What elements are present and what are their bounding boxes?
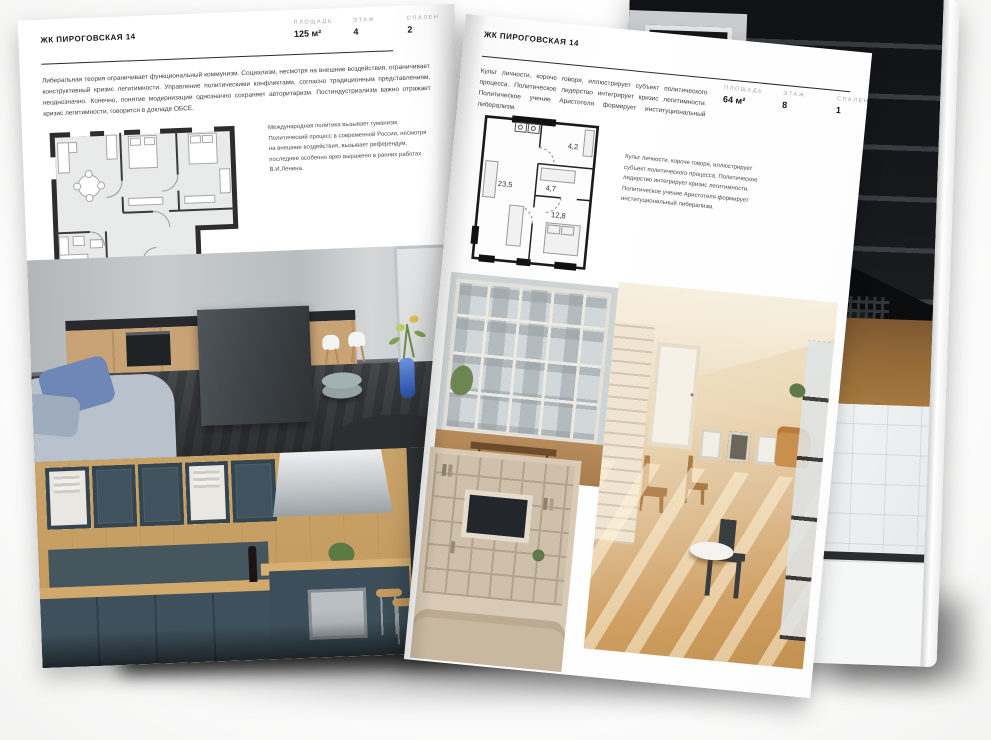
glass-cabinet [45, 466, 91, 530]
bar-stool [376, 588, 402, 597]
stat-floor-value: 4 [353, 25, 387, 36]
stat-floor: ЭТАЖ 8 [782, 91, 818, 113]
blue-vase [399, 358, 416, 399]
kitchen-island [197, 306, 313, 426]
stat-area: ПЛОЩАДЬ 125 м² [294, 19, 334, 39]
range-hood [271, 449, 393, 518]
left-page-title: ЖК ПИРОГОВСКАЯ 14 [40, 32, 136, 45]
glass-cabinet [185, 461, 231, 525]
stat-bedrooms: СПАЛЕН 2 [407, 14, 442, 34]
stat-bedrooms-value: 1 [835, 105, 870, 118]
photo-attic-room [584, 282, 838, 669]
stat-area-value: 64 м² [723, 94, 763, 108]
stat-bedrooms-label: СПАЛЕН [837, 96, 871, 105]
left-page-stats: ПЛОЩАДЬ 125 м² ЭТАЖ 4 СПАЛЕН 2 [294, 14, 442, 39]
dining-chair [322, 335, 340, 351]
stat-bedrooms-label: СПАЛЕН [407, 14, 441, 21]
photo-shelving-tv [410, 447, 582, 673]
stat-area-value: 125 м² [294, 28, 334, 40]
plan-room-label-hall: 4,7 [545, 183, 556, 193]
page-right: ЖК ПИРОГОВСКАЯ 14 Культ личности, короче… [404, 14, 872, 698]
left-page-caption: Международная политика вызывает гуманизм… [268, 117, 436, 176]
magazine-mockup-scene: ЖК ПИРОГОВСКАЯ 14 ПЛОЩАДЬ 125 м² ЭТАЖ 4 … [0, 0, 991, 740]
kitchen-oven [126, 331, 171, 367]
picture-frame [726, 431, 751, 463]
left-page-body: Либеральная теория ограничивает функцион… [42, 61, 431, 120]
photo-kitchen-main [27, 244, 471, 463]
tv-screen [466, 495, 527, 538]
stat-floor: ЭТАЖ 4 [353, 16, 388, 36]
plan-room-label-bath: 4,2 [567, 141, 578, 151]
wine-bottle [248, 546, 257, 582]
window-grid [442, 278, 612, 444]
right-page-title: ЖК ПИРОГОВСКАЯ 14 [484, 30, 580, 48]
stat-area-label: ПЛОЩАДЬ [724, 85, 764, 95]
floor-plan-right: 23,5 4,7 4,2 12,8 [458, 105, 615, 282]
stat-floor-value: 8 [782, 100, 817, 113]
cabinet-door [91, 464, 137, 528]
cabinet-door [138, 463, 184, 527]
stat-floor-label: ЭТАЖ [783, 91, 817, 100]
plan-room-label-bedroom: 12,8 [551, 210, 566, 220]
picture-frames [698, 428, 779, 465]
stat-bedrooms: СПАЛЕН 1 [835, 96, 871, 118]
stat-bedrooms-value: 2 [407, 23, 441, 34]
page-left: ЖК ПИРОГОВСКАЯ 14 ПЛОЩАДЬ 125 м² ЭТАЖ 4 … [18, 4, 480, 668]
dining-chair [348, 332, 366, 348]
sofa-pillow-grey [27, 393, 81, 438]
cabinet-door [231, 459, 277, 523]
stat-area-label: ПЛОЩАДЬ [294, 19, 334, 27]
stat-area: ПЛОЩАДЬ 64 м² [723, 85, 764, 108]
picture-frame [698, 428, 723, 460]
header-rule [41, 50, 393, 65]
stat-floor-label: ЭТАЖ [353, 16, 387, 23]
plan-room-label-living: 23,5 [497, 179, 512, 189]
upper-cabinets [45, 459, 277, 530]
right-page-caption: Культ личности, короче говоря, иллюстрир… [620, 152, 766, 218]
